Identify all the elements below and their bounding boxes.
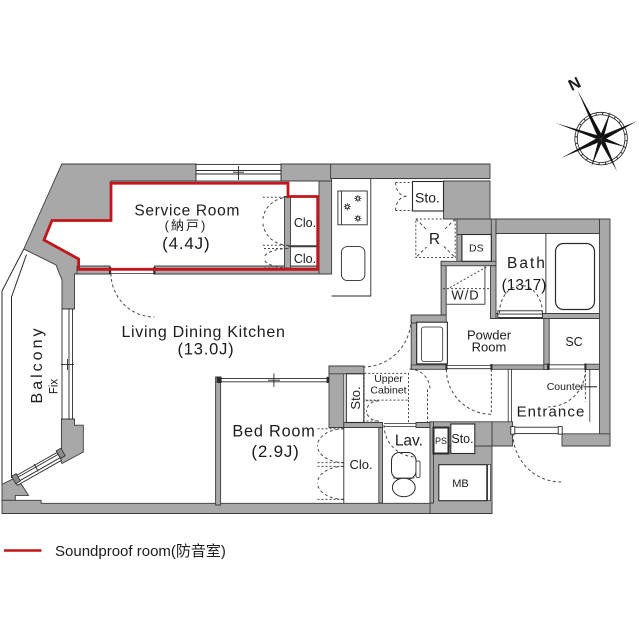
svg-text:(1317): (1317) — [502, 277, 547, 294]
svg-text:Upper: Upper — [374, 373, 403, 385]
svg-text:R: R — [429, 231, 440, 248]
svg-text:Clo.: Clo. — [349, 457, 372, 472]
svg-text:Bed Room: Bed Room — [232, 423, 315, 441]
svg-text:Sto.: Sto. — [415, 190, 440, 206]
svg-text:Lav.: Lav. — [395, 433, 423, 450]
svg-text:(13.0J): (13.0J) — [178, 341, 235, 359]
svg-text:Soundproof room(防音室): Soundproof room(防音室) — [55, 543, 226, 560]
svg-text:(4.4J): (4.4J) — [162, 234, 210, 253]
svg-text:Balcony: Balcony — [29, 326, 46, 404]
svg-text:W/D: W/D — [451, 288, 479, 303]
svg-text:Fix: Fix — [49, 379, 61, 395]
svg-text:Counter: Counter — [547, 381, 585, 393]
svg-text:MB: MB — [452, 478, 469, 490]
svg-text:Bath: Bath — [507, 255, 547, 272]
svg-text:Living Dining Kitchen: Living Dining Kitchen — [121, 324, 285, 341]
svg-text:Sto.: Sto. — [451, 432, 473, 446]
svg-text:Sto.: Sto. — [348, 386, 363, 409]
svg-text:Room: Room — [472, 340, 507, 355]
svg-text:SC: SC — [565, 335, 582, 349]
svg-text:Clo.: Clo. — [294, 252, 316, 266]
svg-text:(納戸): (納戸) — [165, 218, 208, 233]
svg-text:N: N — [566, 74, 584, 94]
svg-text:Cabinet: Cabinet — [370, 385, 406, 397]
svg-text:DS: DS — [469, 243, 484, 255]
svg-text:Service Room: Service Room — [134, 203, 240, 220]
svg-text:PS: PS — [435, 436, 447, 446]
svg-text:Entrance: Entrance — [517, 404, 586, 421]
svg-text:Clo.: Clo. — [294, 216, 316, 230]
svg-text:(2.9J): (2.9J) — [251, 442, 299, 461]
